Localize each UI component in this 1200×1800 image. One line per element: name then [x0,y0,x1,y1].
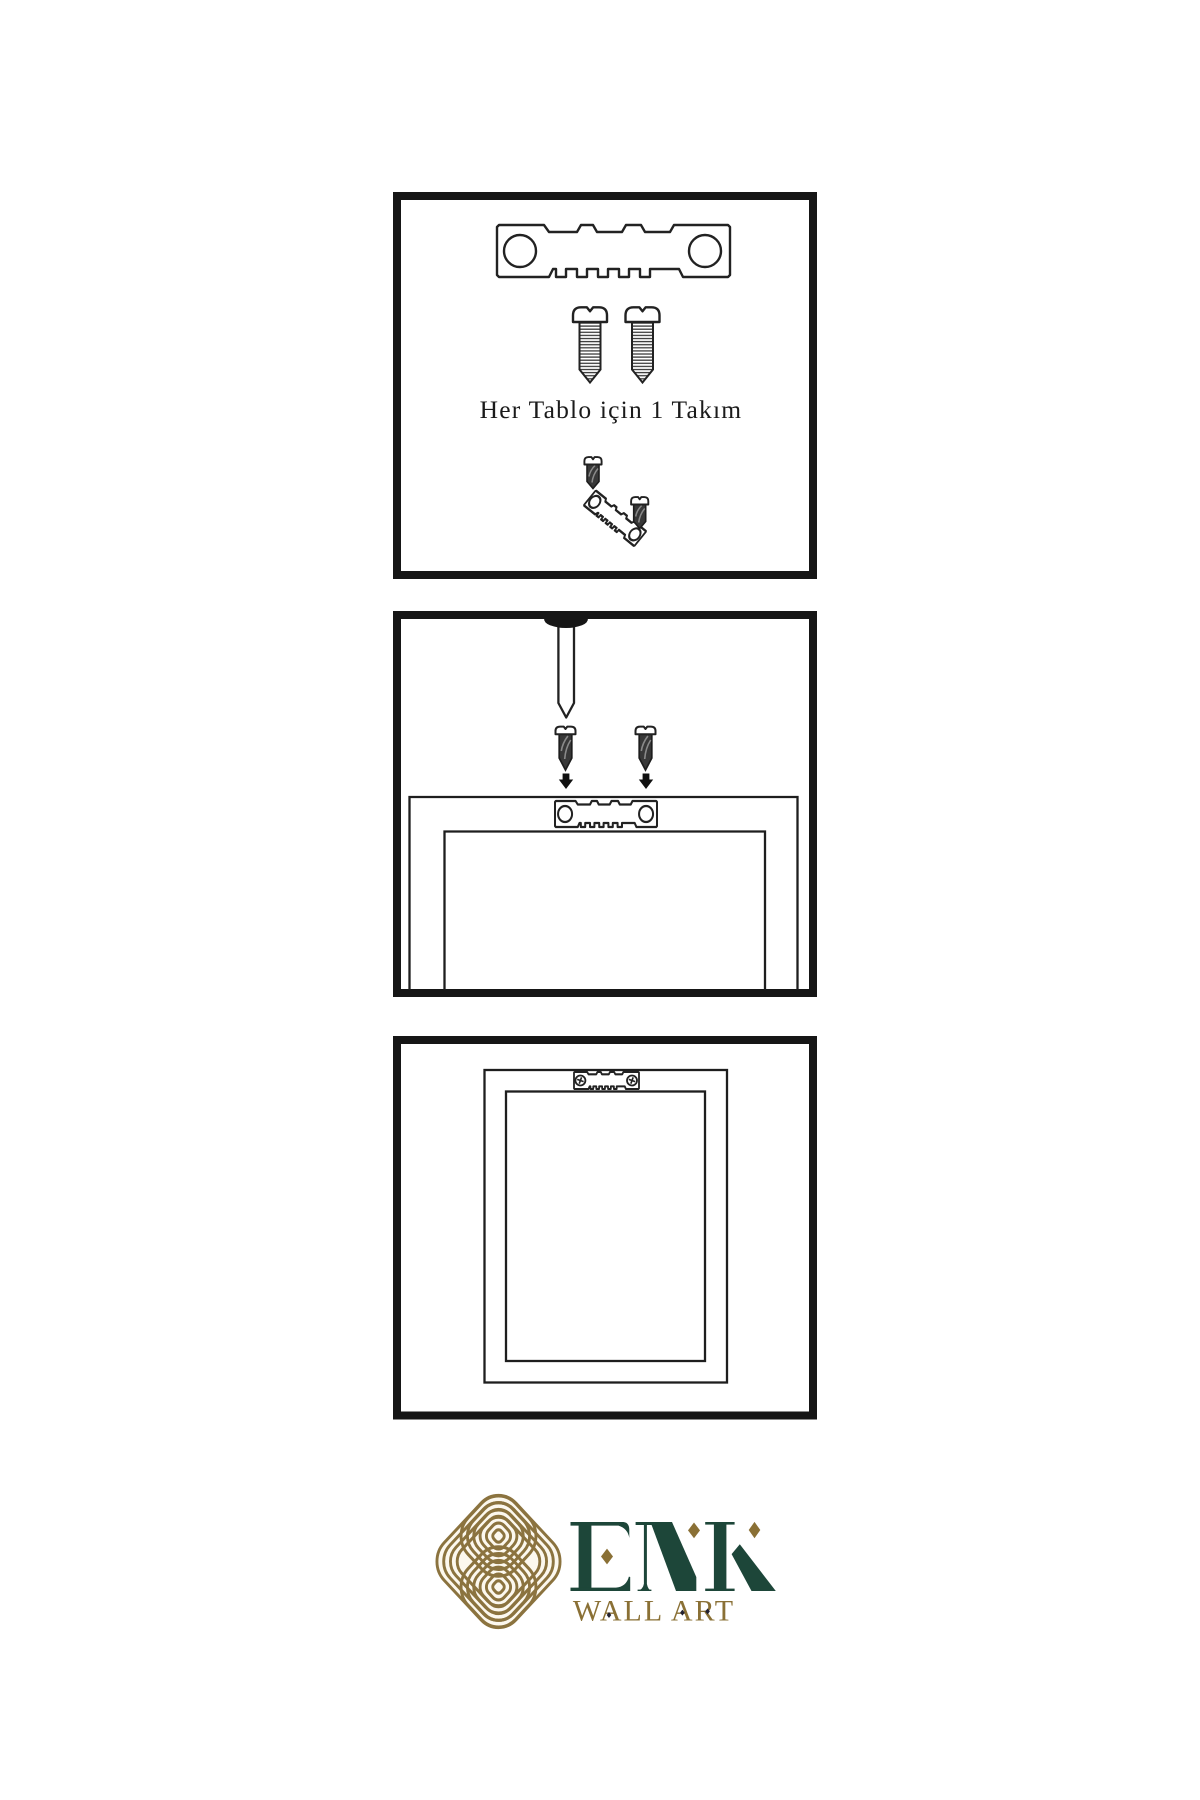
svg-text:WALL ART: WALL ART [573,1595,735,1628]
svg-text:Her Tablo için 1 Takım: Her Tablo için 1 Takım [480,395,743,424]
